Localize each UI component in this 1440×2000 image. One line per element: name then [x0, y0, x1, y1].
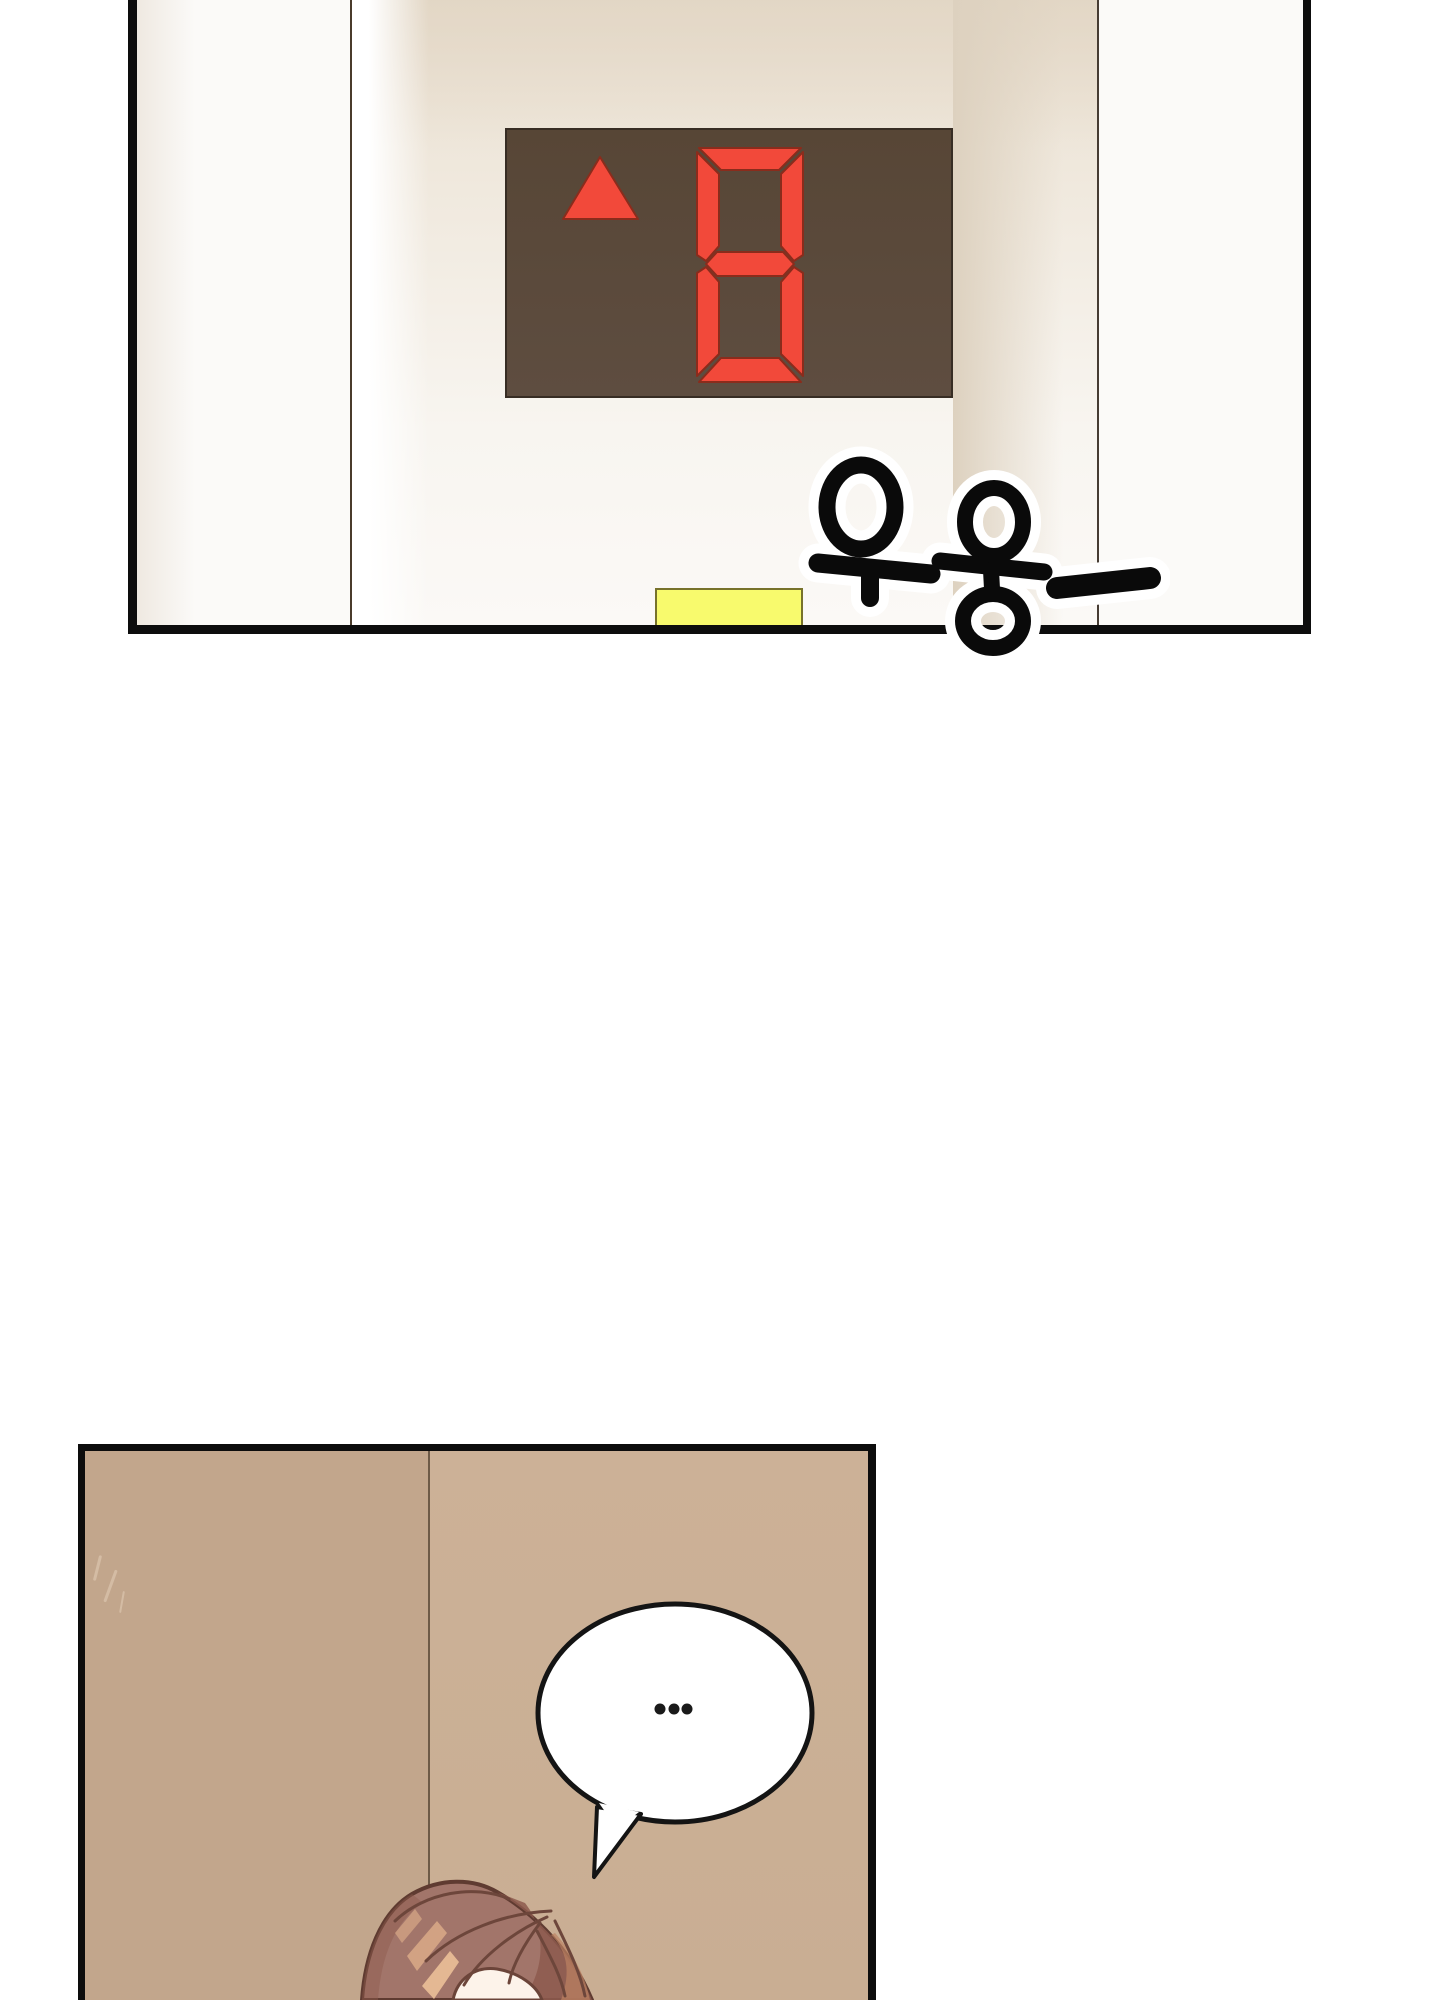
- webtoon-page: 8 우웅—: [0, 0, 1440, 2000]
- yellow-indicator-light: [655, 588, 803, 625]
- wall-corner-line-left: [350, 0, 352, 625]
- floor-digit-8: [697, 148, 803, 382]
- hallway-art: [85, 1451, 868, 2000]
- sfx-text-woong: [790, 440, 1170, 670]
- ellipsis-dots: [655, 1704, 693, 1715]
- panel-hallway: ...: [78, 1444, 876, 2000]
- up-arrow-icon: [563, 157, 638, 219]
- character-hair: [362, 1882, 592, 2000]
- elevator-floor-display: 8: [505, 128, 953, 398]
- speech-bubble: [538, 1604, 812, 1877]
- floor-display-graphics: [507, 130, 951, 396]
